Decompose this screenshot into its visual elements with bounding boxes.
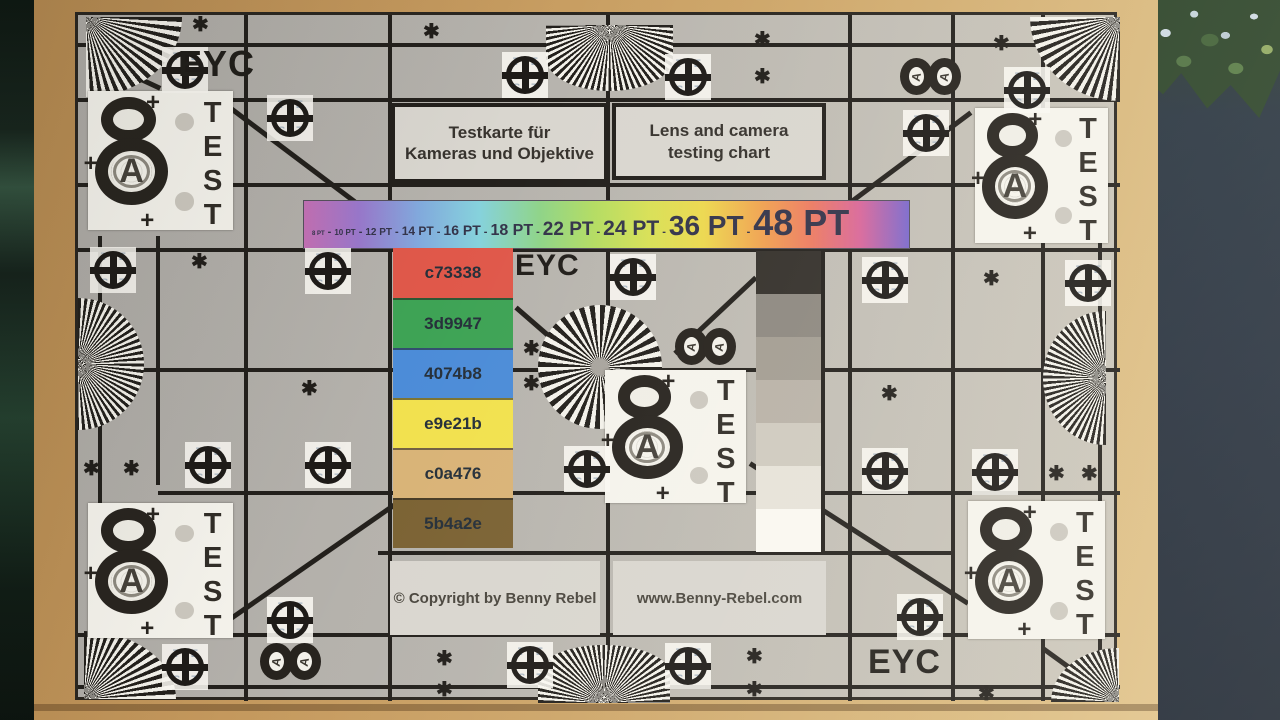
rotated-8a-icon: AA [900, 58, 961, 95]
color-patch: 4074b8 [393, 348, 513, 398]
plus-mark: + [1023, 222, 1037, 246]
resolution-fan-icon [78, 298, 144, 430]
a-glyph: A [684, 341, 699, 352]
color-patch-label: 4074b8 [424, 364, 482, 384]
plus-mark: + [146, 503, 160, 527]
resolution-fan-icon [1051, 648, 1119, 702]
dark-background-left [0, 0, 34, 720]
grid-line [78, 98, 1120, 102]
a-glyph: A [297, 656, 312, 667]
crosshair-target-icon: TEST [972, 449, 1018, 495]
test-vertical-label: TEST [709, 375, 742, 497]
color-patch-label: c73338 [425, 263, 482, 283]
plus-mark: + [84, 152, 98, 176]
asterisk-mark: ✱ [754, 67, 771, 87]
test-8-target: A TEST + + + [605, 370, 746, 503]
eyc-label: EYC [868, 643, 941, 682]
a-glyph: A [909, 71, 924, 82]
crosshair-target-icon: TEST [665, 643, 711, 689]
copyright-text: © Copyright by Benny Rebel [394, 590, 597, 607]
grayscale-step [756, 509, 821, 552]
test-chart: A TEST + + + A TEST + + + A TEST + + + A… [75, 12, 1117, 700]
grayscale-step [756, 423, 821, 466]
website-box: www.Benny-Rebel.com [613, 561, 826, 635]
a-glyph: A [269, 656, 284, 667]
photo-scene: A TEST + + + A TEST + + + A TEST + + + A… [0, 0, 1280, 720]
test-8-target: A TEST + + + [968, 501, 1105, 639]
title-en-line2: testing chart [668, 142, 770, 163]
diagonal-line [514, 306, 549, 337]
grayscale-step [756, 380, 821, 423]
title-en-line1: Lens and camera [650, 120, 789, 141]
copyright-box: © Copyright by Benny Rebel [390, 561, 600, 635]
crosshair-target-icon: TEST [267, 95, 313, 141]
asterisk-mark: ✱ [523, 374, 540, 394]
crosshair-target-icon: TEST [862, 448, 908, 494]
a-glyph: A [992, 565, 1026, 598]
spiral-rings: A [111, 564, 153, 599]
a-glyph: A [629, 432, 665, 463]
rotated-8a-icon: AA [260, 643, 321, 680]
plus-mark: + [964, 562, 978, 586]
crosshair-target-icon: TEST [897, 594, 943, 640]
color-patch-label: 5b4a2e [424, 514, 482, 534]
color-patch-label: c0a476 [425, 464, 482, 484]
crosshair-target-icon: TEST [507, 642, 553, 688]
asterisk-mark: ✱ [423, 22, 440, 42]
title-de-line2: Kameras und Objektive [405, 143, 594, 164]
crosshair-target-icon: TEST [90, 247, 136, 293]
asterisk-mark: ✱ [523, 339, 540, 359]
crosshair-target-icon: TEST [305, 442, 351, 488]
eight-bottom-ring: A [612, 415, 683, 479]
asterisk-mark: ✱ [1081, 464, 1098, 484]
crosshair-target-icon: TEST [267, 597, 313, 643]
test-8-target: A TEST + + + [88, 91, 233, 230]
test-8-target: A TEST + + + [88, 503, 233, 638]
crosshair-target-icon: TEST [564, 446, 610, 492]
website-text: www.Benny-Rebel.com [637, 590, 802, 607]
asterisk-mark: ✱ [746, 647, 763, 667]
crosshair-target-icon: TEST [1004, 67, 1050, 113]
font-size-scale-bar: 8 PT- 10 PT- 12 PT- 14 PT- 16 PT- 18 PT-… [303, 200, 910, 249]
plus-mark: + [146, 91, 160, 115]
grayscale-step [756, 251, 821, 294]
asterisk-mark: ✱ [301, 379, 318, 399]
diagonal-line [230, 491, 413, 620]
spiral-rings: A [990, 563, 1028, 599]
test-vertical-label: TEST [1071, 113, 1104, 237]
spiral-rings: A [111, 153, 153, 190]
asterisk-mark: ✱ [192, 15, 209, 35]
asterisk-mark: ✱ [983, 269, 1000, 289]
asterisk-mark: ✱ [1048, 464, 1065, 484]
color-patch: 3d9947 [393, 298, 513, 348]
asterisk-mark: ✱ [123, 459, 140, 479]
asterisk-mark: ✱ [436, 680, 453, 700]
color-patch: e9e21b [393, 398, 513, 448]
grayscale-step [756, 466, 821, 509]
resolution-fan-icon [546, 25, 673, 91]
color-patch-label: 3d9947 [424, 314, 482, 334]
eyc-label: EYC [178, 43, 255, 85]
crosshair-target-icon: TEST [665, 54, 711, 100]
crosshair-target-icon: TEST [502, 52, 548, 98]
grid-line [378, 551, 951, 555]
a-glyph: A [937, 71, 952, 82]
title-box-german: Testkarte für Kameras und Objektive [391, 103, 608, 183]
a-glyph: A [998, 170, 1031, 202]
eight-bottom-ring: A [982, 154, 1049, 219]
test-vertical-label: TEST [196, 508, 229, 632]
asterisk-mark: ✱ [746, 680, 763, 700]
eight-bottom-ring: A [95, 138, 168, 205]
asterisk-mark: ✱ [83, 459, 100, 479]
plus-mark: + [1023, 501, 1037, 525]
test-vertical-label: TEST [1068, 507, 1101, 634]
grayscale-step-wedge [756, 251, 825, 552]
color-patch: c0a476 [393, 448, 513, 498]
asterisk-mark: ✱ [191, 252, 208, 272]
test-8-target: A TEST + + + [975, 108, 1108, 243]
plus-mark: + [656, 482, 670, 506]
a-glyph: A [113, 565, 150, 597]
rotated-8a-icon: AA [675, 328, 736, 365]
crosshair-target-icon: TEST [610, 254, 656, 300]
plus-mark: + [140, 617, 154, 641]
font-size-labels: 8 PT- 10 PT- 12 PT- 14 PT- 16 PT- 18 PT-… [312, 202, 903, 244]
grayscale-step [756, 337, 821, 380]
color-patch: 5b4a2e [393, 498, 513, 548]
asterisk-mark: ✱ [881, 384, 898, 404]
spiral-rings: A [627, 430, 667, 464]
plus-mark: + [140, 209, 154, 233]
a-glyph: A [113, 155, 150, 188]
resolution-fan-icon [1043, 311, 1106, 445]
grid-line [156, 236, 160, 485]
crosshair-target-icon: TEST [862, 257, 908, 303]
eyc-label: EYC [515, 249, 580, 283]
plus-mark: + [661, 370, 675, 394]
crosshair-target-icon: TEST [305, 248, 351, 294]
plus-mark: + [84, 562, 98, 586]
eight-bottom-ring: A [95, 549, 168, 614]
test-vertical-label: TEST [196, 97, 229, 225]
plus-mark: + [1017, 618, 1031, 642]
crosshair-target-icon: TEST [1065, 260, 1111, 306]
plus-mark: + [971, 167, 985, 191]
asterisk-mark: ✱ [993, 34, 1010, 54]
grid-line [848, 15, 852, 701]
asterisk-mark: ✱ [978, 684, 995, 704]
crosshair-target-icon: TEST [162, 644, 208, 690]
title-de-line1: Testkarte für [449, 122, 551, 143]
crosshair-target-icon: TEST [185, 442, 231, 488]
color-patch-column: c73338 3d9947 4074b8 e9e21b c0a476 5b4a2… [393, 248, 513, 548]
spiral-rings: A [997, 169, 1033, 204]
color-patch-label: e9e21b [424, 414, 482, 434]
crosshair-target-icon: TEST [903, 110, 949, 156]
asterisk-mark: ✱ [754, 30, 771, 50]
grayscale-step [756, 294, 821, 337]
a-glyph: A [712, 341, 727, 352]
eight-bottom-ring: A [975, 548, 1044, 614]
asterisk-mark: ✱ [436, 649, 453, 669]
resolution-fan-icon [538, 645, 670, 703]
title-box-english: Lens and camera testing chart [612, 103, 826, 180]
color-patch: c73338 [393, 248, 513, 298]
grid-line [78, 183, 1120, 187]
